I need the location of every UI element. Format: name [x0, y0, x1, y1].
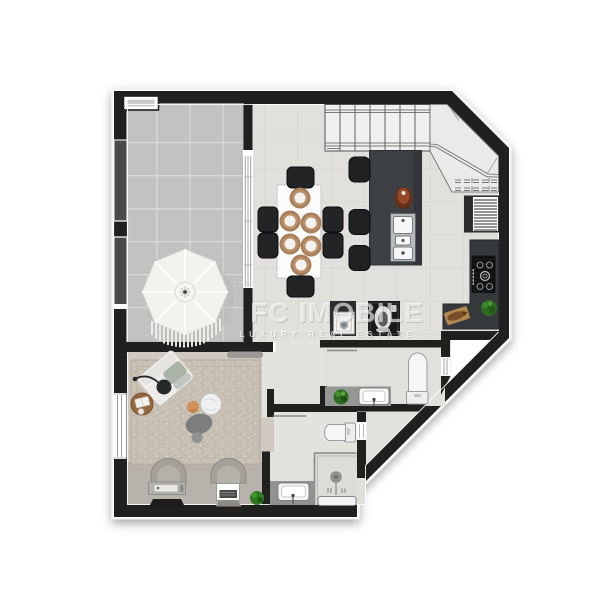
- svg-text:FC IMOBILE: FC IMOBILE: [250, 297, 424, 328]
- svg-text:LUXURY REAL ESTATE: LUXURY REAL ESTATE: [239, 329, 416, 339]
